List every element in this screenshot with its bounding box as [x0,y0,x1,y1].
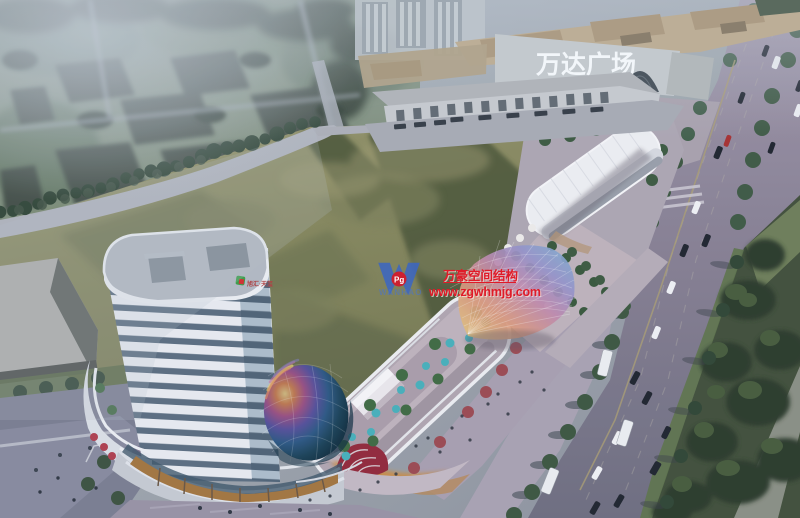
svg-text:www.zgwhmjg.com: www.zgwhmjg.com [428,285,541,299]
svg-text:万豪空间结构: 万豪空间结构 [442,268,518,283]
svg-text:Pg: Pg [394,276,404,285]
svg-text:WANHAO: WANHAO [379,288,423,297]
